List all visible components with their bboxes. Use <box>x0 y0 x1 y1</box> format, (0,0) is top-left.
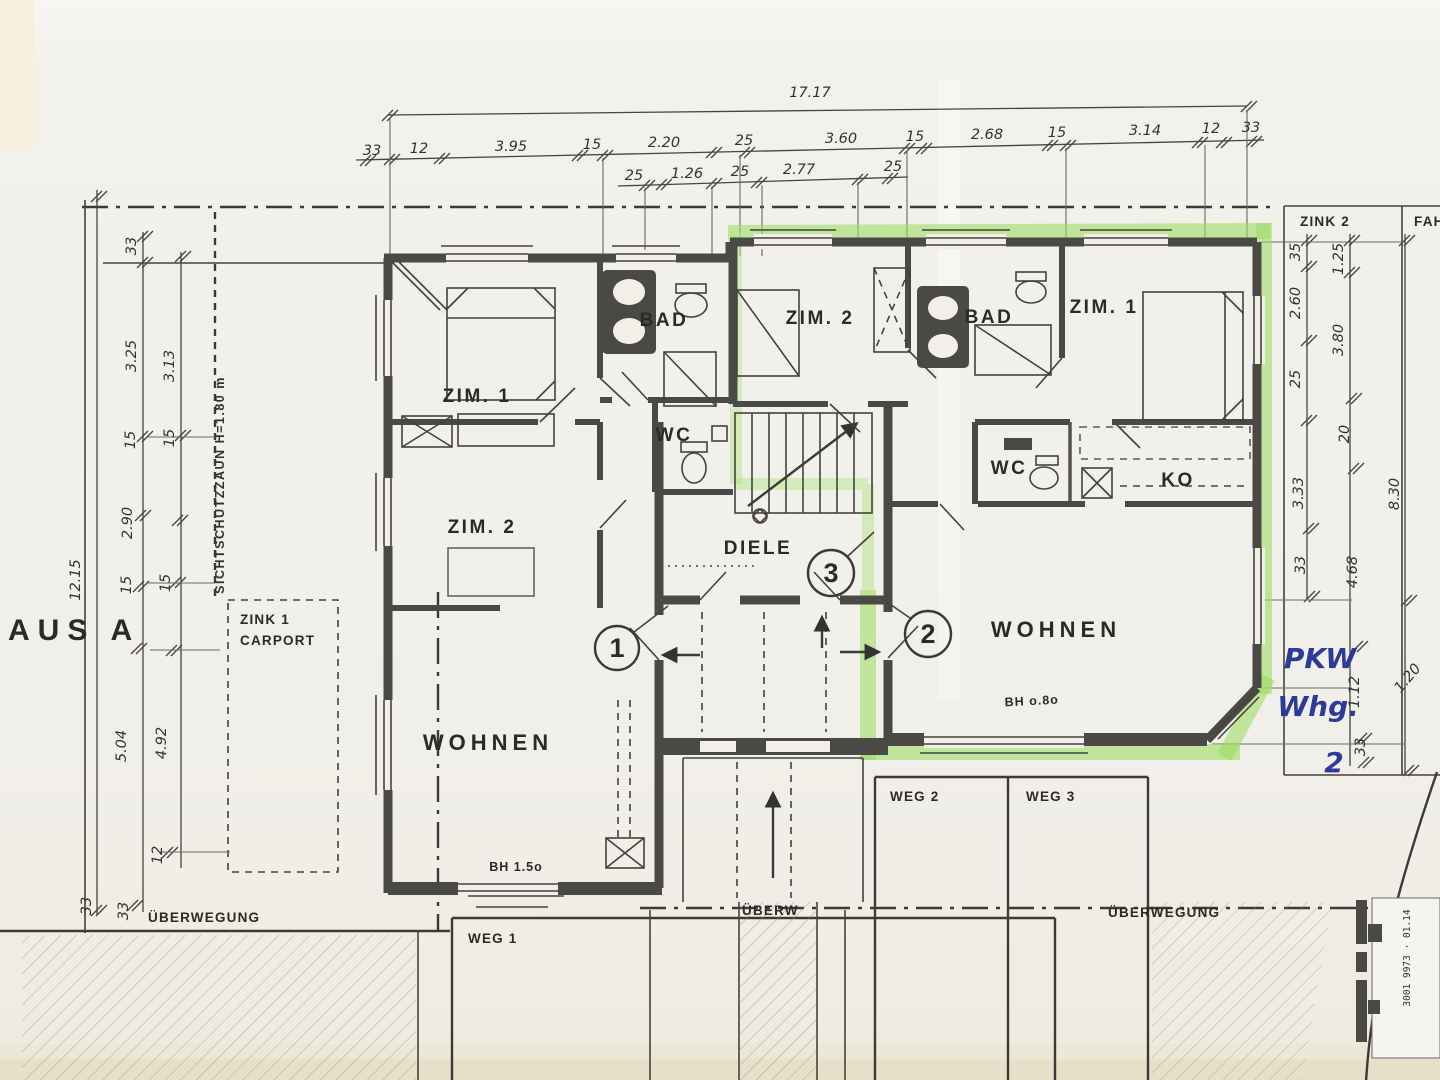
dim-top: 15 <box>583 137 601 153</box>
room-bad-right: BAD <box>965 307 1014 328</box>
dim-left: 15 <box>162 429 178 447</box>
room-wohnen-left: WOHNEN <box>423 730 553 755</box>
room-zim1-left: ZIM. 1 <box>443 386 512 407</box>
dim-left: 5.04 <box>114 730 130 762</box>
dim-left: 15 <box>158 574 174 592</box>
dim-left: 33 <box>124 237 140 255</box>
sill-height-right: BH o.8o <box>1004 693 1059 710</box>
zink2-label: ZINK 2 <box>1300 214 1350 229</box>
dim-top-sub: 25 <box>625 168 643 184</box>
plan-stamp: 3001 9973 · 01.14 <box>1356 898 1440 1058</box>
bed-right <box>1143 292 1243 420</box>
furniture-zim2-left <box>448 548 534 596</box>
dim-top: 2.68 <box>971 127 1003 143</box>
dim-left: 3.13 <box>162 350 178 382</box>
window-right-zim1 <box>1250 296 1265 364</box>
crossing-left-label: ÜBERWEGUNG <box>148 910 260 925</box>
dim-left: 4.92 <box>154 727 170 759</box>
sill-height-left: BH 1.5o <box>489 860 543 874</box>
dim-top: 25 <box>735 133 753 149</box>
dim-right: 20 <box>1337 425 1353 443</box>
carport-label: CARPORT <box>240 633 315 648</box>
stairs <box>735 413 872 513</box>
walls <box>384 242 1257 895</box>
dim-top: 15 <box>906 129 924 145</box>
weg1-label: WEG 1 <box>468 931 518 946</box>
labels: 17.17 33 12 3.95 15 2.20 25 3.60 15 2.68… <box>8 85 1440 946</box>
dim-right-outer: 8.30 <box>1387 478 1403 510</box>
dim-right: 4.68 <box>1345 556 1361 588</box>
floor-plan-canvas: 1 2 3 17.17 33 12 3.95 15 2.20 25 3.60 1… <box>0 0 1440 1080</box>
window-left-wohnen <box>376 695 395 795</box>
window-left-zim1 <box>376 295 395 381</box>
ceiling-lamp <box>753 509 767 523</box>
shower-right <box>975 325 1051 375</box>
dim-top: 3.14 <box>1129 123 1161 139</box>
dim-top: 15 <box>1048 125 1066 141</box>
dim-left: 33 <box>79 897 95 915</box>
dim-top-sub: 2.77 <box>783 162 816 178</box>
bed-left <box>447 288 555 400</box>
crossing-right-label: ÜBERWEGUNG <box>1108 905 1220 920</box>
room-zim2-right: ZIM. 2 <box>786 308 855 329</box>
dim-right-outer: 1.20 <box>1391 661 1424 696</box>
dim-left: 15 <box>123 431 139 449</box>
handwritten-whg: Whg. <box>1277 690 1359 723</box>
dim-left: 3.25 <box>124 340 140 372</box>
room-ko-right: KO <box>1161 470 1195 491</box>
corner-closet-left <box>392 262 447 310</box>
unit-2-number: 2 <box>920 619 935 649</box>
dim-total-width: 17.17 <box>789 85 831 101</box>
dim-top: 12 <box>1202 121 1220 137</box>
dim-left-outer: 12.15 <box>68 559 84 601</box>
sink-unit-right <box>917 286 969 368</box>
stamp-number: 3001 9973 · 01.14 <box>1402 909 1413 1007</box>
dim-right: 3.80 <box>1331 324 1347 356</box>
dim-right: 35 <box>1288 243 1304 261</box>
weg3-label: WEG 3 <box>1026 789 1076 804</box>
dim-top: 12 <box>410 141 428 157</box>
room-wc-right: WC <box>991 458 1028 479</box>
windows <box>376 230 1265 918</box>
handwritten-pkw: PKW <box>1284 642 1357 675</box>
shaft <box>874 268 910 352</box>
weg2-label: WEG 2 <box>890 789 940 804</box>
room-zim2-left: ZIM. 2 <box>448 517 517 538</box>
window-right-wohnen <box>1250 548 1265 644</box>
dim-left: 33 <box>116 902 132 920</box>
crossing-hatch-mid <box>739 902 817 1080</box>
handwritten-2: 2 <box>1324 746 1343 779</box>
crossing-hatch-left <box>22 935 416 1080</box>
window-bottom-wohnen-left <box>458 880 564 918</box>
dim-top-sub: 25 <box>884 159 902 175</box>
site-haus-label: AUS A <box>8 614 140 647</box>
dim-top: 33 <box>1242 120 1260 136</box>
window-top-zim1-left <box>441 246 533 265</box>
window-left-zim2 <box>376 473 395 551</box>
room-wohnen-right: WOHNEN <box>991 617 1121 642</box>
room-bad-left: BAD <box>640 310 689 331</box>
site-lines <box>0 200 1440 1080</box>
dim-right: 25 <box>1288 370 1304 388</box>
column-wohnen-left <box>606 700 644 868</box>
entrance-porch <box>664 612 878 902</box>
dim-right: 33 <box>1353 738 1369 756</box>
dim-top-sub: 1.26 <box>671 166 703 182</box>
dim-left: 15 <box>119 576 135 594</box>
dim-top-sub: 25 <box>731 164 749 180</box>
weg23-outline <box>875 777 1148 1080</box>
closet-zim2-right <box>737 290 799 376</box>
fence-label: SICHTSCHUTZZAUN H=1.80 m <box>213 376 227 594</box>
dim-top: 3.95 <box>495 139 527 155</box>
window-top-bad-left <box>612 246 680 265</box>
unit-3-number: 3 <box>823 558 838 588</box>
dim-right: 1.25 <box>1331 243 1347 275</box>
fixtures <box>392 262 1250 902</box>
dim-top: 3.60 <box>825 131 857 147</box>
fah-label: FAH <box>1414 214 1440 229</box>
dim-left: 12 <box>150 846 166 864</box>
dim-right: 3.33 <box>1291 477 1307 509</box>
dim-top: 2.20 <box>648 135 680 151</box>
toilet-bad-right <box>1016 272 1046 303</box>
dim-right: 33 <box>1293 556 1309 574</box>
floor-plan-scan: 1 2 3 17.17 33 12 3.95 15 2.20 25 3.60 1… <box>0 0 1440 1080</box>
dim-left: 2.90 <box>120 507 136 539</box>
dim-right: 2.60 <box>1288 287 1304 319</box>
crossing-hatch-right <box>1152 902 1332 1080</box>
room-diele: DIELE <box>724 538 792 559</box>
room-zim1-right: ZIM. 1 <box>1070 297 1139 318</box>
zink1-label: ZINK 1 <box>240 612 290 627</box>
ueberw-label: ÜBERW <box>742 903 799 918</box>
unit-1-number: 1 <box>609 633 624 663</box>
dresser-left <box>402 414 554 447</box>
dim-top: 33 <box>363 143 381 159</box>
room-wc-left: WC <box>656 425 693 446</box>
